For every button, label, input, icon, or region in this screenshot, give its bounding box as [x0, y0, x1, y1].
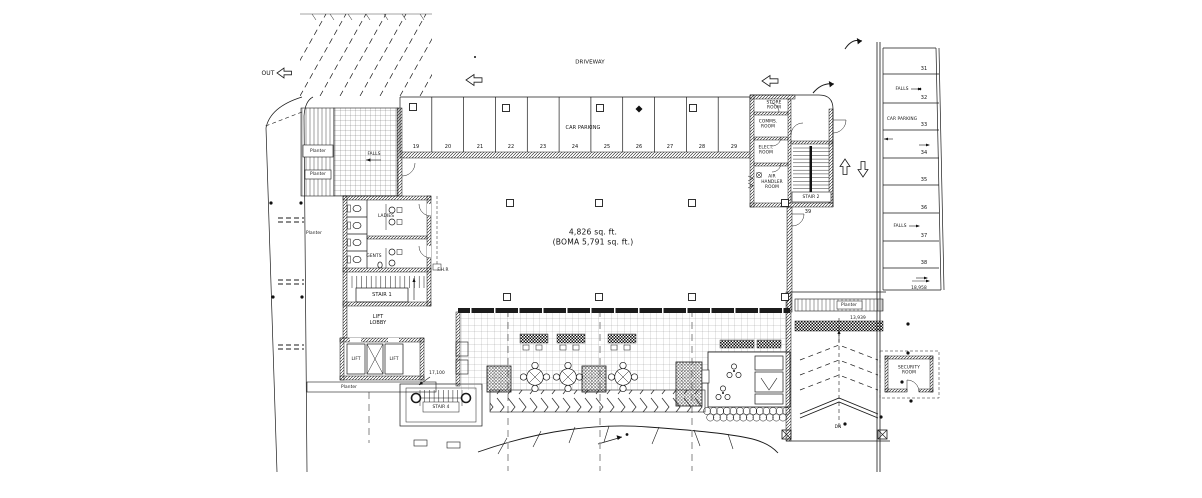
dim-18958-label: 18,958 [911, 285, 927, 290]
dim-13939-label: 13,939 [850, 315, 866, 320]
lift-label: LIFT [351, 356, 360, 361]
area-label: 4,826 sq. ft. [569, 229, 617, 238]
gents-room-label: GENTS [366, 253, 381, 258]
falls-label: FALLS [893, 223, 906, 228]
car-parking-right-label: CAR PARKING [887, 116, 917, 121]
dim-17100-label: 17,100 [429, 370, 445, 375]
stair4-label: STAIR 4 [432, 404, 449, 409]
planter-road-label: Planter [306, 230, 322, 235]
dn-label: DN [835, 424, 842, 429]
parking-stall-number: 26 [635, 144, 642, 150]
air-handler-room-label: AIR HANDLER ROOM [761, 174, 783, 189]
stair1-label: STAIR 1 [372, 292, 392, 298]
fhr-label: F.H.R [437, 267, 448, 272]
parking-column-right [883, 48, 944, 290]
parking-stall-number: 29 [731, 144, 738, 150]
down-arrow-icon [858, 162, 868, 178]
parking-stall-number: 23 [540, 144, 547, 150]
parking-stall-number: 39 [805, 209, 812, 215]
parking-stall-number: 33 [921, 122, 928, 128]
falls-label: FALLS [367, 151, 380, 156]
driveway-label: DRIVEWAY [575, 59, 605, 65]
lift-label: LIFT [389, 356, 398, 361]
security-room-label: SECURITY ROOM [898, 365, 920, 375]
car-parking-top-label: CAR PARKING [565, 125, 600, 131]
area-boma-label: (BOMA 5,791 sq. ft.) [553, 239, 634, 248]
parking-stall-number: 24 [572, 144, 579, 150]
falls-label: FALLS [895, 86, 908, 91]
up-arrow-icon [840, 159, 850, 175]
planter-lift-label: Planter [341, 384, 357, 389]
parking-stall-number: 28 [699, 144, 706, 150]
parking-stall-number: 19 [413, 144, 420, 150]
driveway-arrow-icon [762, 76, 778, 87]
core-block [307, 196, 482, 426]
parking-stall-number: 25 [604, 144, 611, 150]
driveway-arrow-icon [466, 75, 482, 86]
parking-stall-number: 20 [445, 144, 452, 150]
out-arrow-icon [277, 68, 292, 78]
store-room-label: STORE ROOM [767, 100, 782, 110]
planter-box-label: Planter [310, 148, 326, 153]
stair2-label: STAIR 2 [802, 194, 819, 199]
parking-stall-number: 22 [508, 144, 515, 150]
ladies-room-label: LADIES [378, 213, 394, 218]
comms-room-label: COMMS. ROOM [759, 119, 778, 129]
parking-stall-number: 32 [921, 95, 928, 101]
planter-box-label: Planter [310, 171, 326, 176]
floorplan-page: DRIVEWAY CAR PARKING OUT Planter Planter… [0, 0, 1202, 498]
out-label: OUT [261, 69, 274, 76]
parking-stall-number: 34 [921, 150, 928, 156]
parking-stall-number: 37 [921, 233, 928, 239]
floorplan-linework [0, 0, 1202, 498]
parking-stall-number: 21 [476, 144, 483, 150]
terrace [456, 308, 790, 421]
parking-stall-number: 36 [921, 205, 928, 211]
parking-stall-number: 31 [921, 66, 928, 72]
parking-stall-number: 38 [921, 260, 928, 266]
parking-stall-number: 27 [667, 144, 674, 150]
planter-ramp-label: Planter [841, 302, 857, 307]
lift-lobby-label: LIFT LOBBY [370, 314, 387, 326]
elect-room-label: ELECT. ROOM [759, 145, 774, 155]
parking-stall-number: 35 [921, 177, 928, 183]
